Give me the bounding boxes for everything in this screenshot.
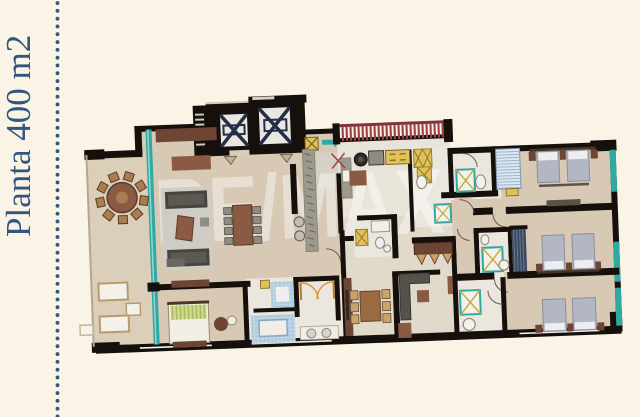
svg-text:Planta 400 m2: Planta 400 m2 <box>0 35 38 237</box>
